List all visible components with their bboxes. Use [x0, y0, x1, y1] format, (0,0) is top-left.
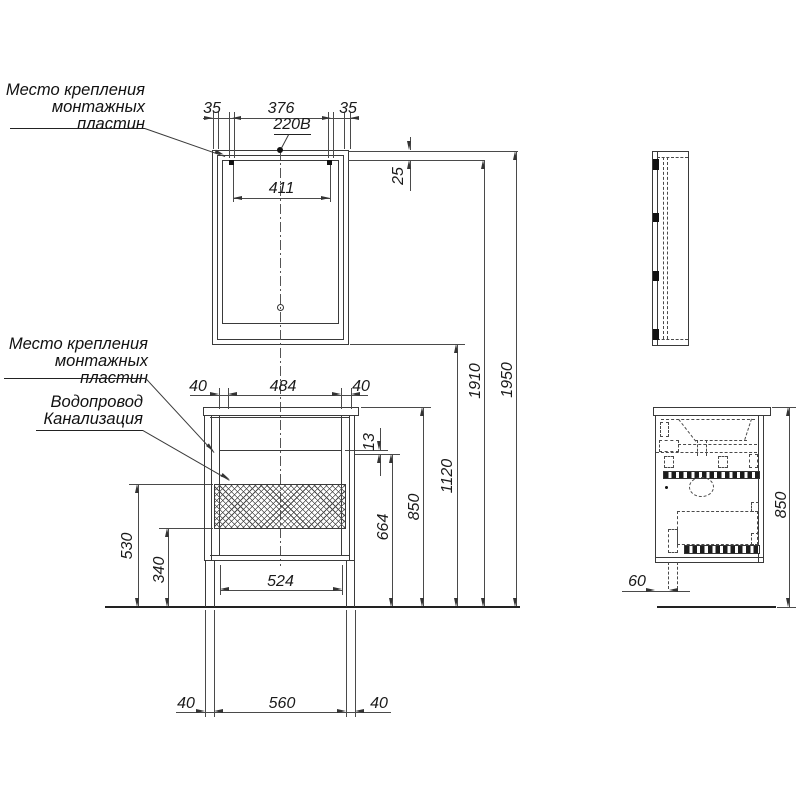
dim-40-left: 40 [189, 378, 207, 396]
dim-arrow [232, 116, 241, 120]
bracket-mark [659, 440, 679, 452]
power-underline [274, 134, 311, 135]
dim-arrow [322, 116, 331, 120]
dim-arrow [165, 528, 169, 537]
dim-arrow [321, 196, 330, 200]
dim-arrow [220, 587, 229, 591]
ext-line [219, 388, 220, 409]
dim-arrow [337, 709, 346, 713]
dim-411: 411 [269, 180, 295, 198]
dim-40-bottom-left: 40 [177, 695, 195, 713]
dim-arrow [389, 454, 393, 463]
ext-line [355, 610, 356, 717]
dim-524: 524 [267, 573, 294, 591]
leg-line [214, 561, 215, 607]
line [349, 416, 350, 560]
sink-hidden-line [661, 419, 755, 420]
hidden-line [656, 452, 757, 453]
dim-arrow [233, 196, 242, 200]
leader-underline [36, 430, 143, 431]
dim-60: 60 [628, 573, 646, 591]
bracket-mark [718, 456, 728, 468]
line [210, 555, 349, 556]
dim-arrow [214, 709, 223, 713]
technical-drawing-sheet: Место крепления монтажных пластин Место … [0, 0, 800, 800]
line [210, 417, 349, 418]
hidden-line [663, 157, 664, 339]
dim-484: 484 [270, 378, 297, 396]
dim-arrow [646, 588, 655, 592]
label-sewerage: Канализация [0, 410, 143, 429]
level-line-1950 [348, 151, 518, 152]
dim-530: 530 [119, 533, 137, 560]
drain-hidden-line [697, 440, 698, 456]
power-label: 220В [273, 116, 310, 134]
line [657, 152, 658, 345]
leg-line [205, 561, 206, 607]
ext-line [772, 407, 796, 408]
drawer-hidden-outline [677, 511, 758, 545]
dim-arrow [332, 392, 341, 396]
bracket-mark [749, 454, 758, 468]
dim-arrow [135, 484, 139, 493]
dim-arrow [355, 709, 364, 713]
dim-25: 25 [390, 167, 408, 185]
floor-line-side [657, 606, 776, 609]
hinge-mark [653, 329, 659, 340]
dim-arrow [377, 454, 381, 463]
leader-underline [4, 378, 146, 379]
drawer-slide-top [663, 471, 760, 479]
dim-arrow [513, 151, 517, 160]
leg-line [354, 561, 355, 607]
dim-1950: 1950 [499, 362, 517, 398]
ext-line [346, 610, 347, 717]
hinge-mark [653, 159, 659, 170]
ext-line [350, 344, 465, 345]
ext-line [342, 565, 343, 595]
ext-line [228, 388, 229, 409]
dim-arrow [228, 392, 237, 396]
dim-arrow [196, 709, 205, 713]
power-leader [281, 134, 289, 147]
floor-line-front [105, 606, 520, 609]
dim-560: 560 [269, 695, 296, 713]
ext-line [229, 112, 230, 158]
line [211, 416, 212, 560]
bracket-mark [664, 456, 674, 468]
hidden-line [667, 157, 668, 339]
dim-arrow [786, 407, 790, 416]
plumbing-zone-hatch [214, 484, 346, 529]
ext-line [205, 610, 206, 717]
leg-hidden-line [677, 562, 678, 589]
dim-line-530 [138, 484, 139, 607]
ext-line [330, 165, 331, 202]
bracket-mark [751, 502, 759, 512]
dim-arrow [786, 598, 790, 607]
hidden-line [657, 339, 688, 340]
dim-arrow [333, 587, 342, 591]
bracket-mark [660, 422, 669, 437]
leg-hidden-outline [668, 529, 678, 553]
bracket-mark [751, 533, 759, 545]
leg-line [346, 561, 347, 607]
dim-35-right: 35 [339, 100, 357, 118]
dim-arrow [669, 588, 678, 592]
dim-arrow [420, 407, 424, 416]
dim-664: 664 [375, 514, 393, 541]
dim-arrow [407, 141, 411, 150]
hidden-line [678, 444, 757, 445]
ext-line [341, 388, 342, 409]
line [656, 557, 763, 558]
dim-1910: 1910 [467, 363, 485, 399]
dim-arrow [210, 392, 219, 396]
ext-line [214, 610, 215, 717]
dim-340: 340 [151, 557, 169, 584]
dim-arrow [481, 160, 485, 169]
dim-1120: 1120 [439, 459, 457, 493]
drain-hidden-line [706, 440, 707, 456]
ext-line [333, 112, 334, 158]
ext-line [129, 484, 213, 485]
hidden-line [657, 157, 688, 158]
dim-35-left: 35 [203, 100, 221, 118]
leg-hidden-line [668, 562, 669, 589]
siphon-hidden-outline [689, 477, 714, 497]
hinge-mark [653, 213, 659, 222]
dim-40-right: 40 [352, 378, 370, 396]
dim-arrow [454, 344, 458, 353]
dim-850-side: 850 [773, 492, 791, 519]
dim-line-1120 [457, 344, 458, 607]
hinge-mark [653, 271, 659, 281]
drawer-bottom-line [219, 450, 341, 451]
drawer-slide-bottom [684, 545, 760, 554]
dim-40-bottom-right: 40 [370, 695, 388, 713]
sink-hidden-line [695, 440, 747, 441]
screw-mark [665, 486, 668, 489]
leader-underline [10, 128, 145, 129]
dim-13: 13 [361, 433, 379, 451]
label-mount-plates-top-3: пластин [0, 115, 145, 134]
level-line-1910 [348, 160, 485, 161]
sensor-switch-mark [277, 304, 284, 311]
dim-850: 850 [406, 494, 424, 521]
